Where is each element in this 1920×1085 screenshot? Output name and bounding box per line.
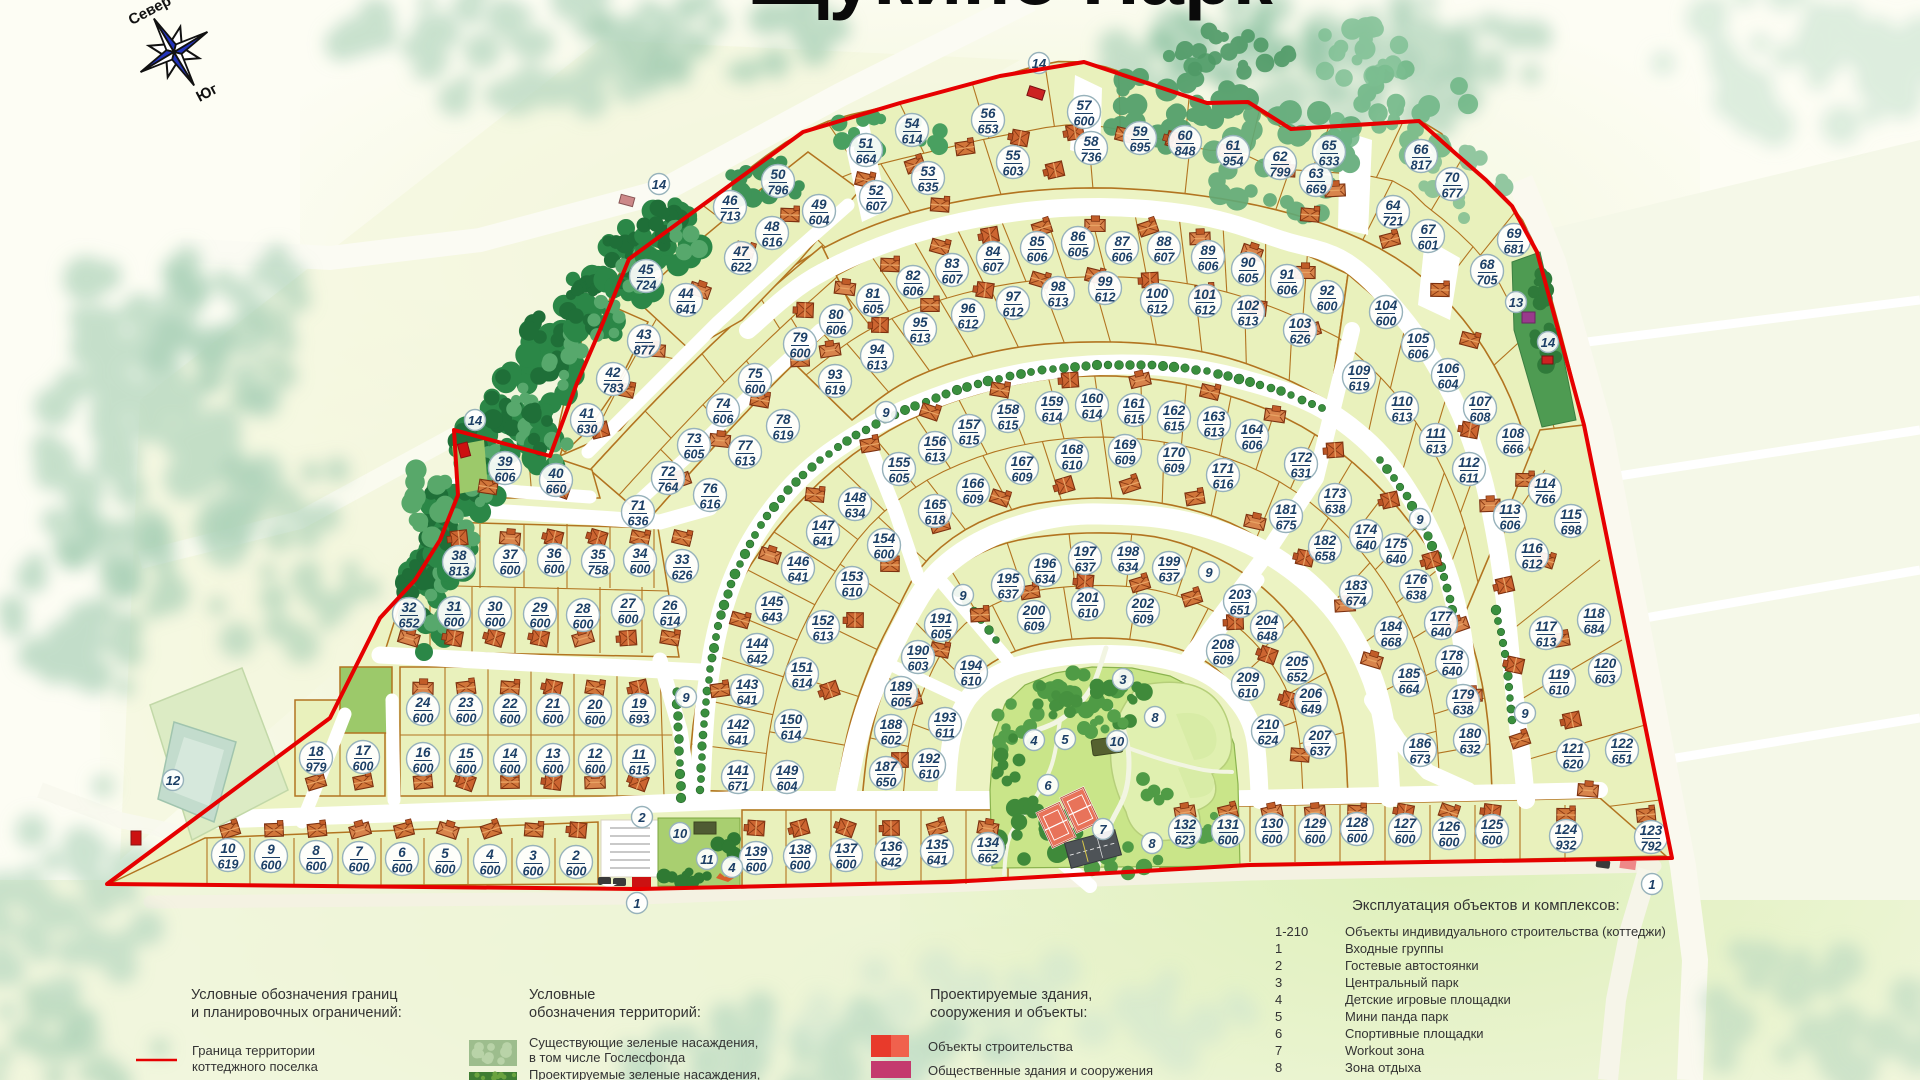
- svg-text:766: 766: [1535, 493, 1557, 507]
- svg-text:613: 613: [1048, 296, 1069, 310]
- svg-text:611: 611: [935, 727, 955, 741]
- svg-text:201: 201: [1076, 590, 1100, 605]
- svg-text:600: 600: [618, 613, 639, 627]
- svg-text:600: 600: [585, 763, 606, 777]
- svg-text:Существующие зеленые насаждени: Существующие зеленые насаждения,: [529, 1035, 758, 1050]
- svg-text:640: 640: [1356, 539, 1377, 553]
- svg-text:Проектируемые здания,: Проектируемые здания,: [930, 987, 1092, 1003]
- svg-text:619: 619: [825, 384, 846, 398]
- svg-text:616: 616: [700, 498, 722, 512]
- svg-text:141: 141: [727, 763, 750, 778]
- svg-text:139: 139: [745, 844, 768, 859]
- svg-text:4: 4: [485, 847, 494, 862]
- svg-text:600: 600: [1074, 115, 1095, 129]
- svg-text:192: 192: [918, 751, 941, 766]
- svg-text:91: 91: [1279, 267, 1294, 282]
- svg-text:14: 14: [502, 746, 518, 761]
- svg-text:и планировочных ограничений:: и планировочных ограничений:: [191, 1005, 402, 1021]
- svg-text:121: 121: [1562, 741, 1585, 756]
- svg-text:613: 613: [925, 451, 946, 465]
- svg-text:613: 613: [735, 455, 756, 469]
- svg-text:606: 606: [1198, 260, 1220, 274]
- svg-text:115: 115: [1560, 507, 1582, 522]
- svg-text:1-210: 1-210: [1275, 924, 1308, 939]
- svg-text:613: 613: [1392, 411, 1413, 425]
- svg-text:600: 600: [1317, 300, 1338, 314]
- svg-text:70: 70: [1444, 170, 1460, 185]
- svg-text:60: 60: [1177, 128, 1193, 143]
- svg-text:6: 6: [1275, 1026, 1282, 1041]
- svg-text:724: 724: [636, 279, 657, 293]
- svg-text:600: 600: [500, 763, 521, 777]
- svg-text:175: 175: [1385, 536, 1408, 551]
- svg-text:614: 614: [902, 133, 923, 147]
- svg-text:783: 783: [603, 382, 624, 396]
- svg-text:600: 600: [1218, 834, 1239, 848]
- svg-text:641: 641: [813, 535, 834, 549]
- svg-text:66: 66: [1413, 142, 1429, 157]
- svg-text:102: 102: [1237, 298, 1260, 313]
- svg-text:32: 32: [401, 600, 417, 615]
- svg-text:638: 638: [1325, 503, 1346, 517]
- svg-text:113: 113: [1499, 502, 1521, 517]
- svg-text:666: 666: [1503, 443, 1525, 457]
- svg-text:40: 40: [547, 466, 564, 481]
- svg-text:652: 652: [399, 617, 420, 631]
- svg-text:13: 13: [545, 746, 561, 761]
- svg-text:600: 600: [456, 712, 477, 726]
- svg-text:612: 612: [1522, 558, 1543, 572]
- svg-text:194: 194: [960, 658, 983, 673]
- svg-text:Объекты индивидуального строит: Объекты индивидуального строительства (к…: [1345, 924, 1666, 939]
- svg-text:671: 671: [728, 780, 749, 794]
- svg-text:156: 156: [924, 434, 947, 449]
- svg-text:129: 129: [1304, 816, 1327, 831]
- svg-text:600: 600: [790, 859, 811, 873]
- svg-text:154: 154: [873, 531, 896, 546]
- svg-text:71: 71: [630, 498, 645, 513]
- svg-text:149: 149: [776, 763, 799, 778]
- svg-text:637: 637: [1310, 745, 1332, 759]
- svg-text:204: 204: [1255, 613, 1279, 628]
- svg-text:932: 932: [1556, 839, 1577, 853]
- svg-text:172: 172: [1290, 450, 1313, 465]
- svg-text:602: 602: [881, 734, 902, 748]
- svg-text:8: 8: [1275, 1060, 1282, 1075]
- svg-text:87: 87: [1114, 234, 1131, 249]
- svg-text:613: 613: [813, 630, 834, 644]
- svg-text:164: 164: [1241, 422, 1264, 437]
- svg-text:76: 76: [702, 481, 718, 496]
- svg-text:161: 161: [1123, 396, 1146, 411]
- svg-text:954: 954: [1223, 155, 1244, 169]
- svg-text:600: 600: [630, 563, 651, 577]
- svg-text:101: 101: [1194, 287, 1217, 302]
- svg-text:168: 168: [1061, 442, 1084, 457]
- svg-text:600: 600: [1395, 833, 1416, 847]
- svg-text:20: 20: [586, 697, 603, 712]
- svg-text:182: 182: [1314, 533, 1337, 548]
- svg-text:Граница территории: Граница территории: [192, 1043, 315, 1058]
- svg-text:651: 651: [1612, 753, 1633, 767]
- svg-text:52: 52: [868, 183, 884, 198]
- svg-text:607: 607: [866, 200, 888, 214]
- svg-text:163: 163: [1203, 409, 1226, 424]
- svg-text:614: 614: [781, 729, 802, 743]
- svg-text:638: 638: [1453, 704, 1474, 718]
- svg-text:668: 668: [1381, 636, 1402, 650]
- svg-text:155: 155: [888, 455, 911, 470]
- svg-text:660: 660: [546, 483, 567, 497]
- svg-text:189: 189: [890, 679, 913, 694]
- svg-text:88: 88: [1156, 234, 1172, 249]
- svg-text:190: 190: [907, 643, 930, 658]
- svg-text:9: 9: [1205, 565, 1213, 580]
- svg-text:606: 606: [495, 471, 517, 485]
- svg-text:19: 19: [631, 696, 647, 711]
- svg-text:82: 82: [905, 268, 921, 283]
- svg-text:197: 197: [1074, 544, 1098, 559]
- svg-text:5: 5: [1275, 1009, 1282, 1024]
- svg-text:89: 89: [1200, 243, 1216, 258]
- svg-text:693: 693: [629, 713, 650, 727]
- svg-text:153: 153: [841, 569, 864, 584]
- svg-text:123: 123: [1640, 823, 1663, 838]
- svg-text:695: 695: [1130, 141, 1152, 155]
- svg-text:7: 7: [1099, 822, 1107, 837]
- svg-text:638: 638: [1406, 589, 1427, 603]
- svg-text:653: 653: [978, 123, 999, 137]
- svg-text:42: 42: [604, 365, 621, 380]
- svg-text:642: 642: [881, 856, 902, 870]
- svg-text:613: 613: [1238, 315, 1259, 329]
- svg-text:658: 658: [1315, 550, 1336, 564]
- svg-text:50: 50: [770, 167, 786, 182]
- svg-text:160: 160: [1081, 391, 1104, 406]
- svg-text:626: 626: [672, 569, 694, 583]
- svg-text:78: 78: [775, 412, 791, 427]
- svg-text:138: 138: [789, 842, 812, 857]
- svg-text:198: 198: [1117, 544, 1140, 559]
- svg-text:179: 179: [1452, 687, 1475, 702]
- svg-text:643: 643: [762, 611, 783, 625]
- svg-text:8: 8: [312, 843, 320, 858]
- svg-text:150: 150: [780, 712, 803, 727]
- svg-text:10: 10: [1110, 734, 1125, 749]
- svg-text:637: 637: [998, 588, 1020, 602]
- svg-text:817: 817: [1411, 159, 1433, 173]
- svg-text:13: 13: [1509, 295, 1524, 310]
- svg-text:83: 83: [944, 256, 960, 271]
- svg-text:сооружения и объекты:: сооружения и объекты:: [930, 1005, 1087, 1021]
- svg-text:56: 56: [980, 106, 996, 121]
- svg-text:605: 605: [931, 628, 953, 642]
- svg-text:125: 125: [1481, 817, 1504, 832]
- svg-text:Гостевые автостоянки: Гостевые автостоянки: [1345, 958, 1479, 973]
- svg-text:126: 126: [1438, 819, 1461, 834]
- svg-text:610: 610: [842, 586, 863, 600]
- svg-text:664: 664: [856, 153, 877, 167]
- svg-text:122: 122: [1611, 736, 1634, 751]
- svg-text:53: 53: [920, 164, 936, 179]
- svg-text:609: 609: [963, 493, 984, 507]
- svg-text:6: 6: [398, 845, 406, 860]
- svg-text:637: 637: [1159, 571, 1181, 585]
- svg-text:209: 209: [1236, 670, 1260, 685]
- svg-text:684: 684: [1584, 623, 1605, 637]
- svg-text:600: 600: [413, 762, 434, 776]
- svg-text:607: 607: [942, 273, 964, 287]
- svg-text:3: 3: [1275, 975, 1282, 990]
- svg-text:152: 152: [812, 613, 835, 628]
- svg-text:674: 674: [1346, 595, 1367, 609]
- svg-text:616: 616: [1213, 478, 1235, 492]
- svg-text:134: 134: [977, 835, 1000, 850]
- svg-text:Детские игровые площадки: Детские игровые площадки: [1345, 992, 1511, 1007]
- svg-text:124: 124: [1555, 822, 1578, 837]
- svg-text:106: 106: [1437, 361, 1460, 376]
- svg-text:4: 4: [1275, 992, 1282, 1007]
- svg-text:601: 601: [1418, 239, 1439, 253]
- svg-text:23: 23: [457, 695, 474, 710]
- svg-text:705: 705: [1477, 274, 1499, 288]
- svg-text:135: 135: [926, 837, 949, 852]
- svg-text:151: 151: [791, 660, 814, 675]
- svg-text:641: 641: [788, 571, 809, 585]
- svg-text:612: 612: [1003, 306, 1024, 320]
- svg-text:Зона отдыха: Зона отдыха: [1345, 1060, 1422, 1075]
- svg-text:41: 41: [578, 406, 594, 421]
- svg-text:642: 642: [747, 653, 768, 667]
- svg-text:630: 630: [577, 423, 598, 437]
- svg-text:в том числе Гослесфонда: в том числе Гослесфонда: [529, 1050, 686, 1065]
- svg-text:600: 600: [500, 564, 521, 578]
- svg-text:37: 37: [502, 547, 519, 562]
- svg-text:600: 600: [392, 862, 413, 876]
- svg-text:90: 90: [1240, 255, 1256, 270]
- svg-text:119: 119: [1548, 667, 1570, 682]
- svg-text:609: 609: [1133, 613, 1154, 627]
- svg-text:600: 600: [585, 714, 606, 728]
- svg-text:600: 600: [544, 563, 565, 577]
- svg-text:131: 131: [1217, 817, 1240, 832]
- svg-text:200: 200: [1022, 603, 1046, 618]
- svg-text:641: 641: [737, 694, 758, 708]
- svg-text:614: 614: [792, 677, 813, 691]
- svg-text:605: 605: [863, 303, 885, 317]
- svg-text:622: 622: [731, 261, 752, 275]
- svg-text:Центральный парк: Центральный парк: [1345, 975, 1459, 990]
- svg-text:15: 15: [458, 746, 474, 761]
- svg-text:77: 77: [737, 438, 754, 453]
- svg-text:205: 205: [1285, 654, 1309, 669]
- svg-text:792: 792: [1641, 840, 1662, 854]
- svg-text:110: 110: [1391, 394, 1413, 409]
- svg-text:600: 600: [523, 865, 544, 879]
- svg-text:162: 162: [1163, 403, 1186, 418]
- svg-text:16: 16: [415, 745, 431, 760]
- svg-text:137: 137: [835, 841, 859, 856]
- svg-text:45: 45: [637, 262, 654, 277]
- svg-text:4: 4: [727, 860, 736, 875]
- svg-text:5: 5: [441, 846, 449, 861]
- svg-text:Общественные здания и сооружен: Общественные здания и сооружения: [928, 1063, 1153, 1078]
- svg-text:186: 186: [1409, 736, 1432, 751]
- svg-text:166: 166: [962, 476, 985, 491]
- svg-text:681: 681: [1504, 243, 1525, 257]
- svg-text:648: 648: [1257, 630, 1278, 644]
- svg-text:610: 610: [961, 675, 982, 689]
- svg-text:600: 600: [1262, 833, 1283, 847]
- svg-text:600: 600: [874, 548, 895, 562]
- svg-text:11: 11: [632, 747, 646, 762]
- svg-text:1: 1: [633, 896, 640, 911]
- svg-text:105: 105: [1407, 331, 1430, 346]
- svg-text:9: 9: [267, 842, 275, 857]
- svg-text:612: 612: [1195, 304, 1216, 318]
- svg-text:27: 27: [619, 596, 637, 611]
- svg-text:799: 799: [1270, 166, 1291, 180]
- svg-text:203: 203: [1228, 587, 1252, 602]
- svg-text:9: 9: [959, 588, 967, 603]
- svg-text:55: 55: [1005, 148, 1021, 163]
- svg-text:606: 606: [903, 285, 925, 299]
- svg-text:611: 611: [1459, 472, 1479, 486]
- svg-text:796: 796: [768, 184, 790, 198]
- svg-text:612: 612: [1095, 291, 1116, 305]
- svg-text:615: 615: [998, 419, 1020, 433]
- svg-text:109: 109: [1348, 363, 1371, 378]
- svg-text:609: 609: [1213, 654, 1234, 668]
- svg-text:64: 64: [1385, 198, 1401, 213]
- svg-text:142: 142: [727, 717, 750, 732]
- svg-text:613: 613: [1536, 636, 1557, 650]
- svg-text:74: 74: [715, 396, 731, 411]
- svg-text:605: 605: [889, 472, 911, 486]
- svg-text:14: 14: [468, 413, 483, 428]
- svg-text:615: 615: [1164, 420, 1186, 434]
- svg-text:3: 3: [529, 848, 537, 863]
- svg-text:600: 600: [1482, 834, 1503, 848]
- svg-text:606: 606: [1500, 519, 1522, 533]
- svg-text:обозначения территорий:: обозначения территорий:: [529, 1005, 701, 1021]
- svg-text:609: 609: [1115, 454, 1136, 468]
- svg-text:9: 9: [682, 690, 690, 705]
- svg-text:610: 610: [919, 768, 940, 782]
- svg-text:196: 196: [1034, 556, 1057, 571]
- svg-text:669: 669: [1306, 183, 1327, 197]
- svg-text:92: 92: [1319, 283, 1335, 298]
- svg-text:600: 600: [745, 383, 766, 397]
- svg-text:609: 609: [1164, 462, 1185, 476]
- svg-text:79: 79: [792, 330, 808, 345]
- svg-text:618: 618: [925, 514, 946, 528]
- svg-text:640: 640: [1431, 626, 1452, 640]
- svg-text:662: 662: [978, 852, 999, 866]
- svg-text:651: 651: [1230, 604, 1251, 618]
- svg-text:103: 103: [1289, 316, 1312, 331]
- svg-text:612: 612: [958, 318, 979, 332]
- svg-text:67: 67: [1420, 222, 1437, 237]
- svg-text:178: 178: [1441, 648, 1464, 663]
- svg-text:698: 698: [1561, 524, 1582, 538]
- svg-text:600: 600: [1376, 315, 1397, 329]
- svg-text:49: 49: [810, 197, 827, 212]
- svg-text:609: 609: [1012, 471, 1033, 485]
- svg-text:600: 600: [306, 860, 327, 874]
- svg-text:758: 758: [588, 564, 609, 578]
- svg-text:600: 600: [500, 713, 521, 727]
- svg-text:4: 4: [1029, 733, 1038, 748]
- svg-text:848: 848: [1175, 145, 1196, 159]
- svg-text:114: 114: [1534, 476, 1556, 491]
- svg-text:600: 600: [480, 864, 501, 878]
- svg-text:600: 600: [530, 617, 551, 631]
- svg-text:Проектируемые зеленые насажден: Проектируемые зеленые насаждения,: [529, 1067, 760, 1080]
- svg-text:614: 614: [660, 615, 681, 629]
- svg-text:14: 14: [652, 177, 667, 192]
- svg-text:173: 173: [1324, 486, 1347, 501]
- svg-text:112: 112: [1458, 455, 1480, 470]
- svg-text:10: 10: [220, 841, 236, 856]
- svg-text:600: 600: [790, 347, 811, 361]
- svg-text:167: 167: [1011, 454, 1035, 469]
- svg-text:637: 637: [1075, 561, 1097, 575]
- svg-text:600: 600: [543, 763, 564, 777]
- svg-text:813: 813: [449, 565, 470, 579]
- svg-text:635: 635: [918, 181, 940, 195]
- svg-text:6: 6: [1044, 778, 1052, 793]
- svg-text:600: 600: [1347, 832, 1368, 846]
- svg-text:39: 39: [497, 454, 513, 469]
- svg-text:600: 600: [413, 712, 434, 726]
- svg-text:54: 54: [904, 116, 920, 131]
- svg-text:606: 606: [1027, 251, 1049, 265]
- svg-text:604: 604: [777, 780, 798, 794]
- svg-text:636: 636: [628, 515, 650, 529]
- svg-text:605: 605: [1068, 246, 1090, 260]
- svg-text:144: 144: [746, 636, 769, 651]
- svg-text:65: 65: [1321, 138, 1337, 153]
- svg-text:181: 181: [1275, 502, 1298, 517]
- svg-text:600: 600: [543, 713, 564, 727]
- svg-text:606: 606: [713, 413, 735, 427]
- svg-text:Workout зона: Workout зона: [1345, 1043, 1425, 1058]
- svg-text:96: 96: [960, 301, 976, 316]
- svg-text:30: 30: [487, 599, 503, 614]
- svg-text:75: 75: [747, 366, 763, 381]
- svg-text:649: 649: [1301, 703, 1322, 717]
- svg-text:721: 721: [1383, 215, 1404, 229]
- svg-text:2: 2: [571, 848, 580, 863]
- svg-text:85: 85: [1029, 234, 1045, 249]
- svg-text:10: 10: [673, 826, 688, 841]
- svg-text:147: 147: [812, 518, 836, 533]
- svg-text:2: 2: [637, 810, 646, 825]
- svg-text:31: 31: [446, 599, 461, 614]
- svg-text:Мини панда парк: Мини панда парк: [1345, 1009, 1449, 1024]
- svg-text:713: 713: [720, 210, 741, 224]
- svg-text:641: 641: [927, 854, 948, 868]
- svg-text:136: 136: [880, 839, 903, 854]
- svg-text:675: 675: [1276, 519, 1298, 533]
- svg-text:640: 640: [1442, 665, 1463, 679]
- svg-text:210: 210: [1256, 717, 1280, 732]
- svg-text:Спортивные площадки: Спортивные площадки: [1345, 1026, 1484, 1041]
- svg-text:764: 764: [658, 481, 679, 495]
- svg-text:606: 606: [1408, 348, 1430, 362]
- svg-text:195: 195: [997, 571, 1020, 586]
